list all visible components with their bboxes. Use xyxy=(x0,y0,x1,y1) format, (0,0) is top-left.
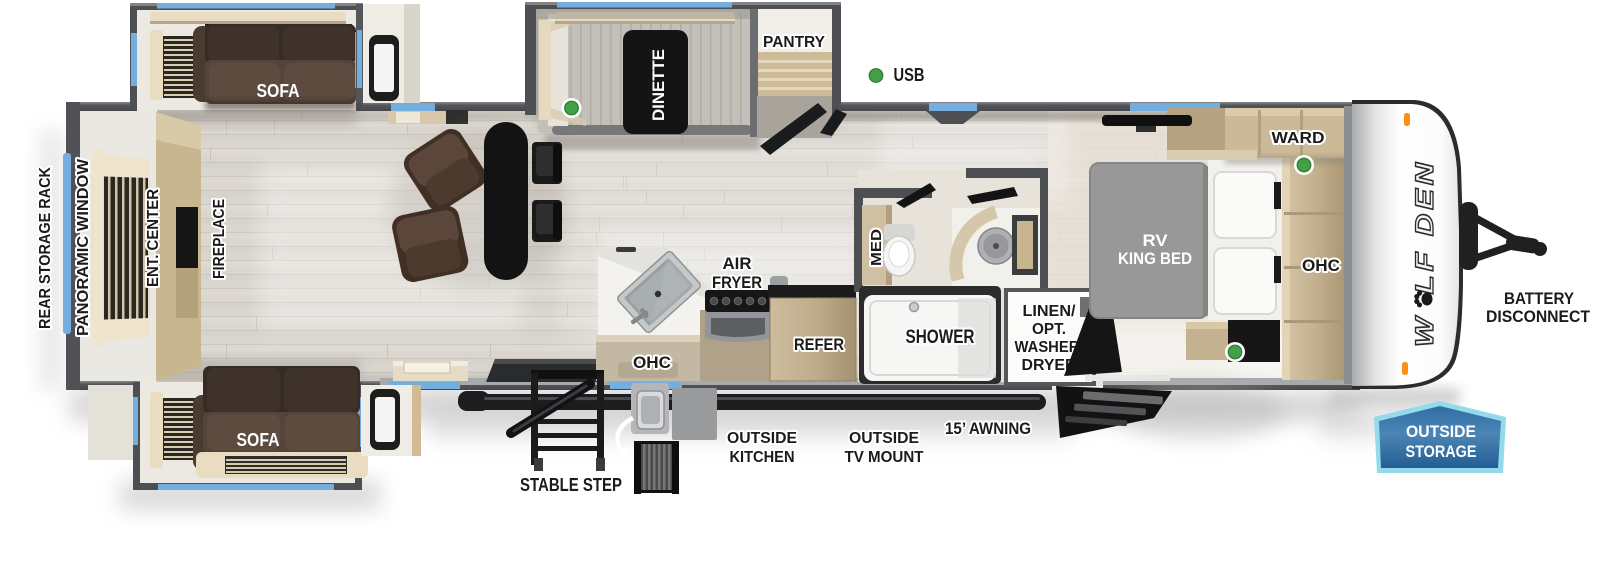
svg-text:PANORAMIC WINDOW: PANORAMIC WINDOW xyxy=(75,159,92,336)
svg-text:OPT.: OPT. xyxy=(1032,321,1066,338)
svg-text:OHC: OHC xyxy=(1302,256,1340,275)
svg-text:W LF DEN: W LF DEN xyxy=(1411,159,1439,347)
svg-text:PANTRY: PANTRY xyxy=(763,34,825,51)
svg-text:KITCHEN: KITCHEN xyxy=(730,449,795,466)
svg-text:BATTERY: BATTERY xyxy=(1504,289,1575,308)
svg-text:STORAGE: STORAGE xyxy=(1406,443,1477,461)
svg-text:SOFA: SOFA xyxy=(257,81,300,101)
svg-text:TV MOUNT: TV MOUNT xyxy=(845,449,924,466)
svg-text:RV: RV xyxy=(1143,231,1169,250)
svg-text:KING BED: KING BED xyxy=(1118,249,1192,268)
svg-text:USB: USB xyxy=(894,65,925,85)
svg-text:SHOWER: SHOWER xyxy=(906,327,975,348)
svg-text:OUTSIDE: OUTSIDE xyxy=(727,430,797,447)
svg-text:OUTSIDE: OUTSIDE xyxy=(849,430,919,447)
svg-text:STABLE STEP: STABLE STEP xyxy=(520,475,622,495)
svg-text:ENT. CENTER: ENT. CENTER xyxy=(145,189,162,287)
svg-text:REAR STORAGE RACK: REAR STORAGE RACK xyxy=(37,166,54,329)
svg-text:FIREPLACE: FIREPLACE xyxy=(211,199,228,279)
svg-text:OUTSIDE: OUTSIDE xyxy=(1406,423,1476,441)
svg-text:WARD: WARD xyxy=(1272,130,1325,147)
svg-text:OHC: OHC xyxy=(633,353,671,372)
svg-text:SOFA: SOFA xyxy=(237,430,280,450)
svg-text:DINETTE: DINETTE xyxy=(649,49,668,121)
svg-text:DISCONNECT: DISCONNECT xyxy=(1486,307,1591,326)
svg-text:LINEN/: LINEN/ xyxy=(1023,303,1077,320)
svg-text:FRYER: FRYER xyxy=(712,273,762,292)
svg-text:15’ AWNING: 15’ AWNING xyxy=(945,419,1031,438)
svg-text:MED: MED xyxy=(868,229,885,266)
svg-text:AIR: AIR xyxy=(723,254,752,273)
svg-text:REFER: REFER xyxy=(794,335,844,354)
